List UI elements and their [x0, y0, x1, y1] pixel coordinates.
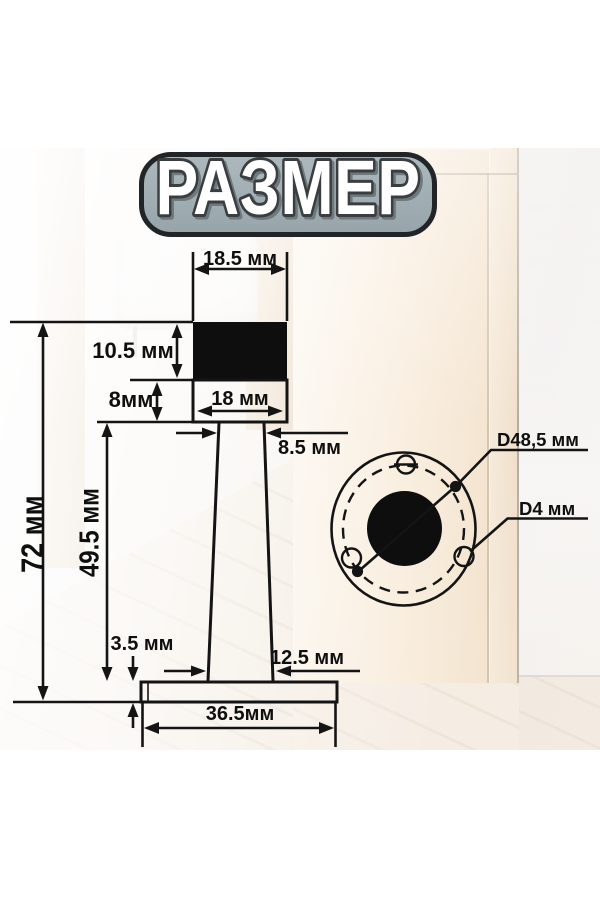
dim-label-stem-bottom-width: 12.5 мм	[247, 648, 367, 669]
title-badge-text: РАЗМЕР РАЗМЕР	[144, 157, 432, 232]
rubber-cap	[193, 322, 287, 380]
dim-label-body-width: 18 мм	[180, 389, 300, 410]
screw-hole-bottom-left	[342, 549, 361, 568]
dim-label-base-width: 36.5мм	[180, 704, 300, 725]
dim-label-cap-height: 10.5 мм	[73, 339, 193, 362]
title-badge: РАЗМЕР РАЗМЕР	[139, 152, 437, 237]
dim-label-top-width: 18.5 мм	[180, 249, 300, 270]
dim-label-base-thickness: 3.5 мм	[82, 634, 202, 655]
base-plate	[141, 682, 337, 702]
stem-right-edge	[264, 423, 273, 681]
dim-label-stem-top-width: 8.5 мм	[278, 438, 341, 459]
stem-left-edge	[208, 423, 219, 681]
dim-label-body-height: 8мм	[71, 388, 191, 411]
dim-label-total-height: 72 мм	[17, 464, 50, 604]
side-view-drawing	[10, 252, 360, 747]
product-dimensions-image: 18.5 мм 10.5 мм 8мм 18 мм 8.5 мм 72 мм 4…	[0, 0, 600, 900]
top-view-drawing	[332, 450, 589, 606]
dim-label-hole-diameter: D4 мм	[519, 499, 575, 518]
dim-label-stem-height: 49.5 мм	[76, 463, 105, 603]
dim-label-outer-diameter: D48,5 мм	[497, 430, 579, 449]
title-text: РАЗМЕР	[155, 157, 420, 230]
